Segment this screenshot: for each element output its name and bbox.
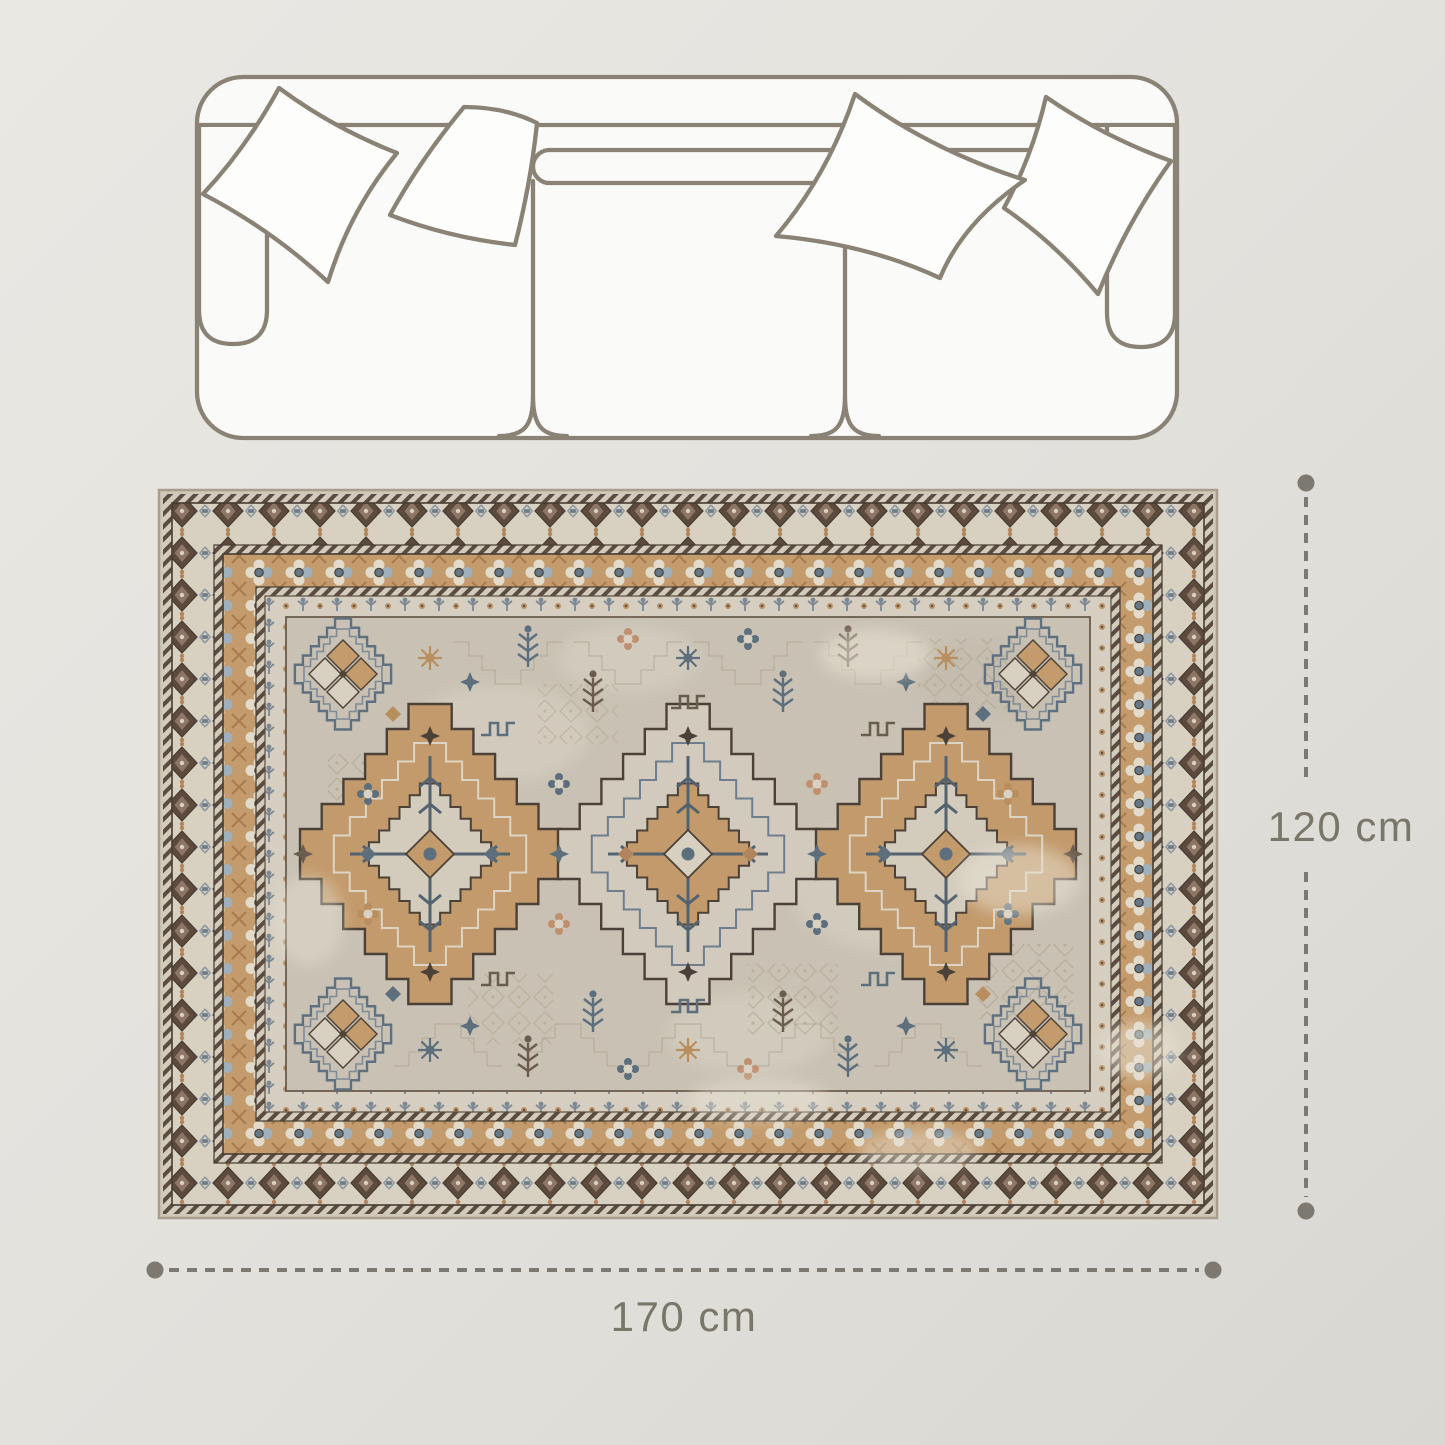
dimension-endpoint-dot <box>147 1262 164 1279</box>
product-dimension-diagram: 120 cm 170 cm <box>0 0 1445 1445</box>
dimension-endpoint-dot <box>1205 1262 1222 1279</box>
width-dimension-line <box>147 1262 1222 1279</box>
height-dimension-label: 120 cm <box>1268 803 1415 851</box>
dimension-endpoint-dot <box>1298 1203 1315 1220</box>
oriental-rug-image <box>159 490 1217 1218</box>
width-dimension-label: 170 cm <box>611 1293 758 1341</box>
sofa-top-view-icon <box>197 77 1177 438</box>
diagram-canvas <box>0 0 1445 1445</box>
dimension-endpoint-dot <box>1298 475 1315 492</box>
